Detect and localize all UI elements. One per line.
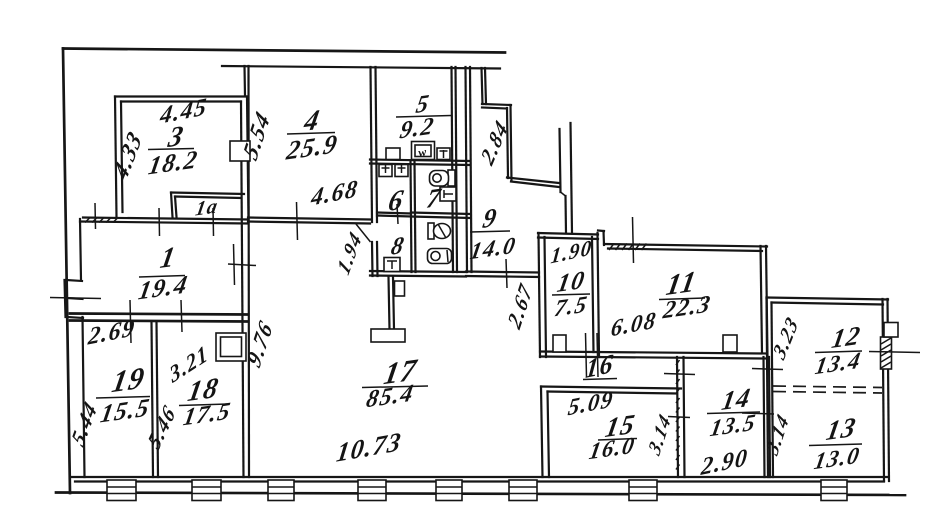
svg-text:7.5: 7.5 [553, 291, 590, 322]
svg-text:9.2: 9.2 [398, 113, 437, 145]
svg-text:1a: 1a [194, 195, 221, 221]
